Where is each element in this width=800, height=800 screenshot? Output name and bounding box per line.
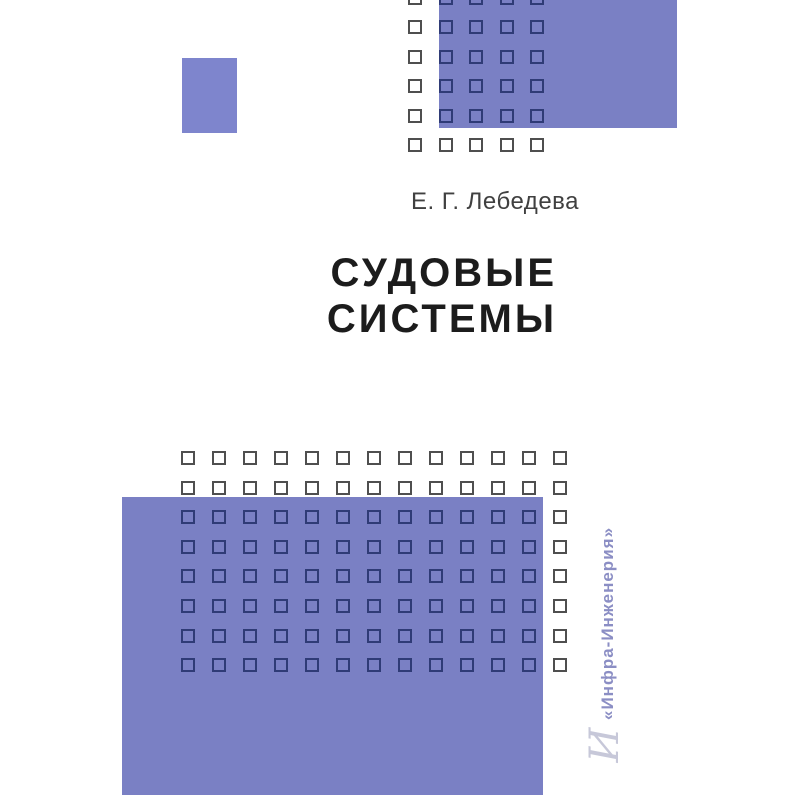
decor-grid-square (439, 50, 453, 64)
decor-grid-square (336, 451, 350, 465)
decor-grid-square (274, 599, 288, 613)
decor-grid-square (491, 540, 505, 554)
decor-grid-square (305, 510, 319, 524)
decor-grid-square (530, 109, 544, 123)
decor-grid-square (491, 569, 505, 583)
decor-grid-square (274, 540, 288, 554)
publisher-logo-icon: И (584, 724, 626, 766)
decor-grid-square (367, 540, 381, 554)
decor-grid-square (212, 629, 226, 643)
decor-grid-square (212, 451, 226, 465)
decor-grid-square (469, 20, 483, 34)
decor-grid-square (212, 481, 226, 495)
decor-grid-square (460, 658, 474, 672)
decor-grid-square (553, 451, 567, 465)
decor-grid-square (491, 481, 505, 495)
decor-grid-square (367, 451, 381, 465)
decor-grid-square (398, 481, 412, 495)
decor-grid-square (530, 20, 544, 34)
decor-grid-square (522, 451, 536, 465)
decor-grid-square (212, 569, 226, 583)
decor-grid-square (181, 540, 195, 554)
decor-grid-square (522, 481, 536, 495)
decor-grid-square (181, 599, 195, 613)
publisher-name: «Инфра-Инженерия» (598, 548, 618, 720)
decor-grid-square (243, 451, 257, 465)
decor-grid-square (553, 510, 567, 524)
decor-grid-square (439, 138, 453, 152)
decor-grid-square (469, 109, 483, 123)
title-line-2: СИСТЕМЫ (327, 297, 557, 341)
decor-grid-square (181, 451, 195, 465)
decor-grid-square (500, 109, 514, 123)
decor-grid-square (500, 20, 514, 34)
decor-grid-square (429, 451, 443, 465)
decor-grid-square (500, 0, 514, 5)
decor-grid-square (336, 599, 350, 613)
decor-grid-square (367, 569, 381, 583)
decor-grid-square (336, 629, 350, 643)
decor-grid-square (367, 629, 381, 643)
decor-grid-square (243, 569, 257, 583)
decor-grid-square (398, 451, 412, 465)
decor-grid-square (530, 0, 544, 5)
decor-grid-square (408, 109, 422, 123)
decor-grid-square (398, 510, 412, 524)
decor-grid-square (429, 510, 443, 524)
decor-grid-square (553, 569, 567, 583)
decor-grid-square (336, 569, 350, 583)
decor-grid-square (212, 658, 226, 672)
decor-grid-square (439, 109, 453, 123)
decor-grid-square (398, 658, 412, 672)
decor-grid-square (522, 629, 536, 643)
decor-grid-square (429, 540, 443, 554)
decor-grid-square (181, 510, 195, 524)
decor-grid-square (469, 79, 483, 93)
decor-grid-square (305, 629, 319, 643)
decor-grid-square (181, 569, 195, 583)
decor-grid-square (553, 481, 567, 495)
book-cover: Е. Г. Лебедева СУДОВЫЕ СИСТЕМЫ «Инфра-Ин… (0, 0, 800, 800)
decor-grid-square (469, 0, 483, 5)
decor-grid-square (243, 658, 257, 672)
decor-grid-square (243, 599, 257, 613)
decor-grid-square (439, 20, 453, 34)
decor-grid-square (522, 569, 536, 583)
decor-grid-square (305, 658, 319, 672)
decor-grid-square (460, 451, 474, 465)
decor-grid-square (460, 569, 474, 583)
decor-grid-square (429, 629, 443, 643)
author-name: Е. Г. Лебедева (411, 188, 579, 216)
decor-grid-square (243, 540, 257, 554)
decor-grid-square (398, 540, 412, 554)
decor-grid-square (460, 481, 474, 495)
decor-grid-square (530, 138, 544, 152)
decor-grid-square (408, 138, 422, 152)
decor-grid-square (491, 629, 505, 643)
decor-grid-square (469, 50, 483, 64)
decor-grid-square (439, 0, 453, 5)
decor-grid-square (336, 658, 350, 672)
decor-grid-square (367, 481, 381, 495)
decor-grid-square (305, 569, 319, 583)
decor-grid-square (336, 510, 350, 524)
decor-grid-square (522, 658, 536, 672)
decor-grid-square (429, 599, 443, 613)
decor-grid-square (553, 658, 567, 672)
decor-grid-square (274, 510, 288, 524)
decor-grid-square (408, 0, 422, 5)
decor-grid-square (408, 79, 422, 93)
decor-grid-square (408, 20, 422, 34)
decor-grid-square (398, 629, 412, 643)
decor-grid-square (398, 599, 412, 613)
decor-grid-square (212, 510, 226, 524)
decor-grid-square (274, 629, 288, 643)
decor-grid-square (429, 569, 443, 583)
decor-grid-square (243, 481, 257, 495)
decor-grid-square (460, 540, 474, 554)
decor-grid-square (500, 79, 514, 93)
decor-grid-square (336, 481, 350, 495)
book-title: СУДОВЫЕ СИСТЕМЫ (327, 250, 557, 342)
decor-grid-square (460, 510, 474, 524)
decor-grid-square (181, 658, 195, 672)
decor-grid-square (429, 658, 443, 672)
decor-grid-square (398, 569, 412, 583)
decor-grid-square (243, 510, 257, 524)
decor-grid-square (367, 510, 381, 524)
decor-grid-square (305, 451, 319, 465)
decor-grid-square (336, 540, 350, 554)
decor-grid-square (274, 451, 288, 465)
decor-grid-square (522, 510, 536, 524)
decor-grid-square (530, 50, 544, 64)
decor-grid-square (429, 481, 443, 495)
decor-grid-square (305, 481, 319, 495)
decor-grid-square (469, 138, 483, 152)
decor-grid-square (500, 138, 514, 152)
decor-grid-square (408, 50, 422, 64)
decor-grid-square (181, 481, 195, 495)
decor-grid-square (460, 629, 474, 643)
decor-grid-square (491, 451, 505, 465)
decor-grid-square (530, 79, 544, 93)
decor-grid-square (274, 658, 288, 672)
decor-grid-square (439, 79, 453, 93)
decor-grid-square (274, 481, 288, 495)
decor-grid-square (500, 50, 514, 64)
decor-grid-square (212, 540, 226, 554)
decor-grid-square (522, 540, 536, 554)
decor-grid-square (243, 629, 257, 643)
decor-grid-square (491, 599, 505, 613)
decor-grid-square (367, 658, 381, 672)
decor-grid-square (367, 599, 381, 613)
decor-grid-square (491, 510, 505, 524)
decor-grid-square (522, 599, 536, 613)
title-line-1: СУДОВЫЕ (330, 251, 557, 295)
decor-grid-square (460, 599, 474, 613)
decor-grid-square (491, 658, 505, 672)
decor-square-small (182, 58, 237, 133)
decor-grid-square (305, 599, 319, 613)
decor-grid-square (553, 540, 567, 554)
decor-grid-square (305, 540, 319, 554)
decor-grid-square (212, 599, 226, 613)
decor-grid-square (553, 599, 567, 613)
decor-grid-square (181, 629, 195, 643)
decor-grid-square (274, 569, 288, 583)
decor-grid-square (553, 629, 567, 643)
